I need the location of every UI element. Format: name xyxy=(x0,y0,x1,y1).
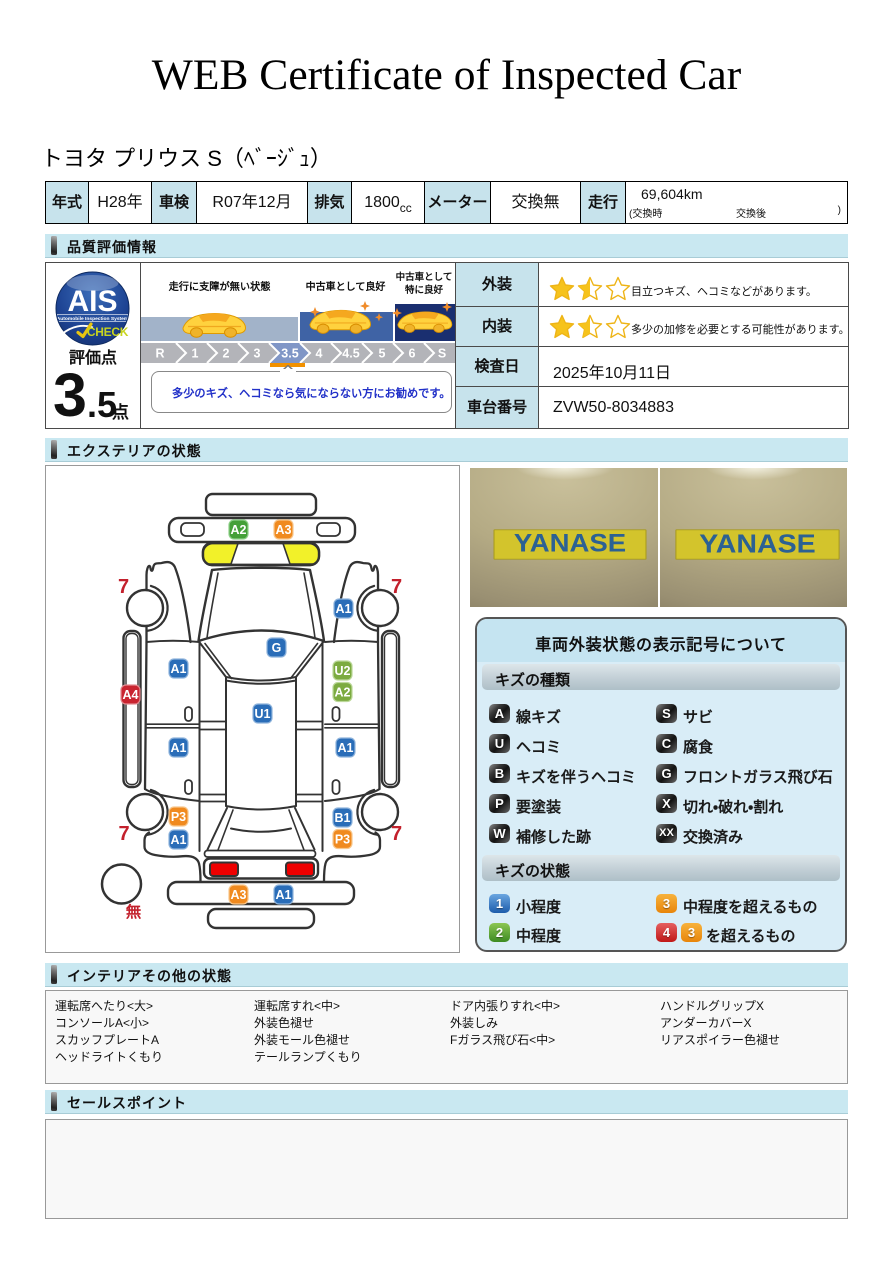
svg-text:5: 5 xyxy=(379,347,386,361)
svg-text:Automobile Inspection System: Automobile Inspection System xyxy=(57,316,129,322)
svg-text:U2: U2 xyxy=(335,664,351,678)
svg-text:S: S xyxy=(438,347,446,361)
svg-text:R: R xyxy=(155,347,164,361)
svg-text:A1: A1 xyxy=(336,602,352,616)
svg-text:U1: U1 xyxy=(255,707,271,721)
svg-text:4.5: 4.5 xyxy=(342,347,359,361)
svg-text:2: 2 xyxy=(223,347,230,361)
svg-text:7: 7 xyxy=(118,576,129,598)
svg-text:7: 7 xyxy=(391,576,402,598)
svg-text:A1: A1 xyxy=(276,888,292,902)
svg-text:A1: A1 xyxy=(338,741,354,755)
svg-text:A4: A4 xyxy=(123,688,139,702)
svg-text:1: 1 xyxy=(192,347,199,361)
svg-text:AIS: AIS xyxy=(67,285,117,318)
svg-text:A1: A1 xyxy=(171,833,187,847)
svg-text:7: 7 xyxy=(391,823,402,845)
svg-text:6: 6 xyxy=(409,347,416,361)
svg-text:3.5: 3.5 xyxy=(281,347,298,361)
svg-text:CHECK: CHECK xyxy=(87,325,129,339)
svg-text:A2: A2 xyxy=(335,686,351,700)
svg-text:P3: P3 xyxy=(171,810,186,824)
svg-text:A1: A1 xyxy=(171,741,187,755)
svg-text:無: 無 xyxy=(126,902,142,921)
svg-text:G: G xyxy=(272,641,282,655)
svg-text:A2: A2 xyxy=(231,523,247,537)
svg-text:B1: B1 xyxy=(335,811,351,825)
svg-text:4: 4 xyxy=(316,347,323,361)
svg-text:7: 7 xyxy=(118,823,129,845)
svg-text:A3: A3 xyxy=(276,523,292,537)
svg-text:3: 3 xyxy=(254,347,261,361)
svg-text:P3: P3 xyxy=(335,833,350,847)
svg-text:A3: A3 xyxy=(231,888,247,902)
svg-text:A1: A1 xyxy=(171,662,187,676)
